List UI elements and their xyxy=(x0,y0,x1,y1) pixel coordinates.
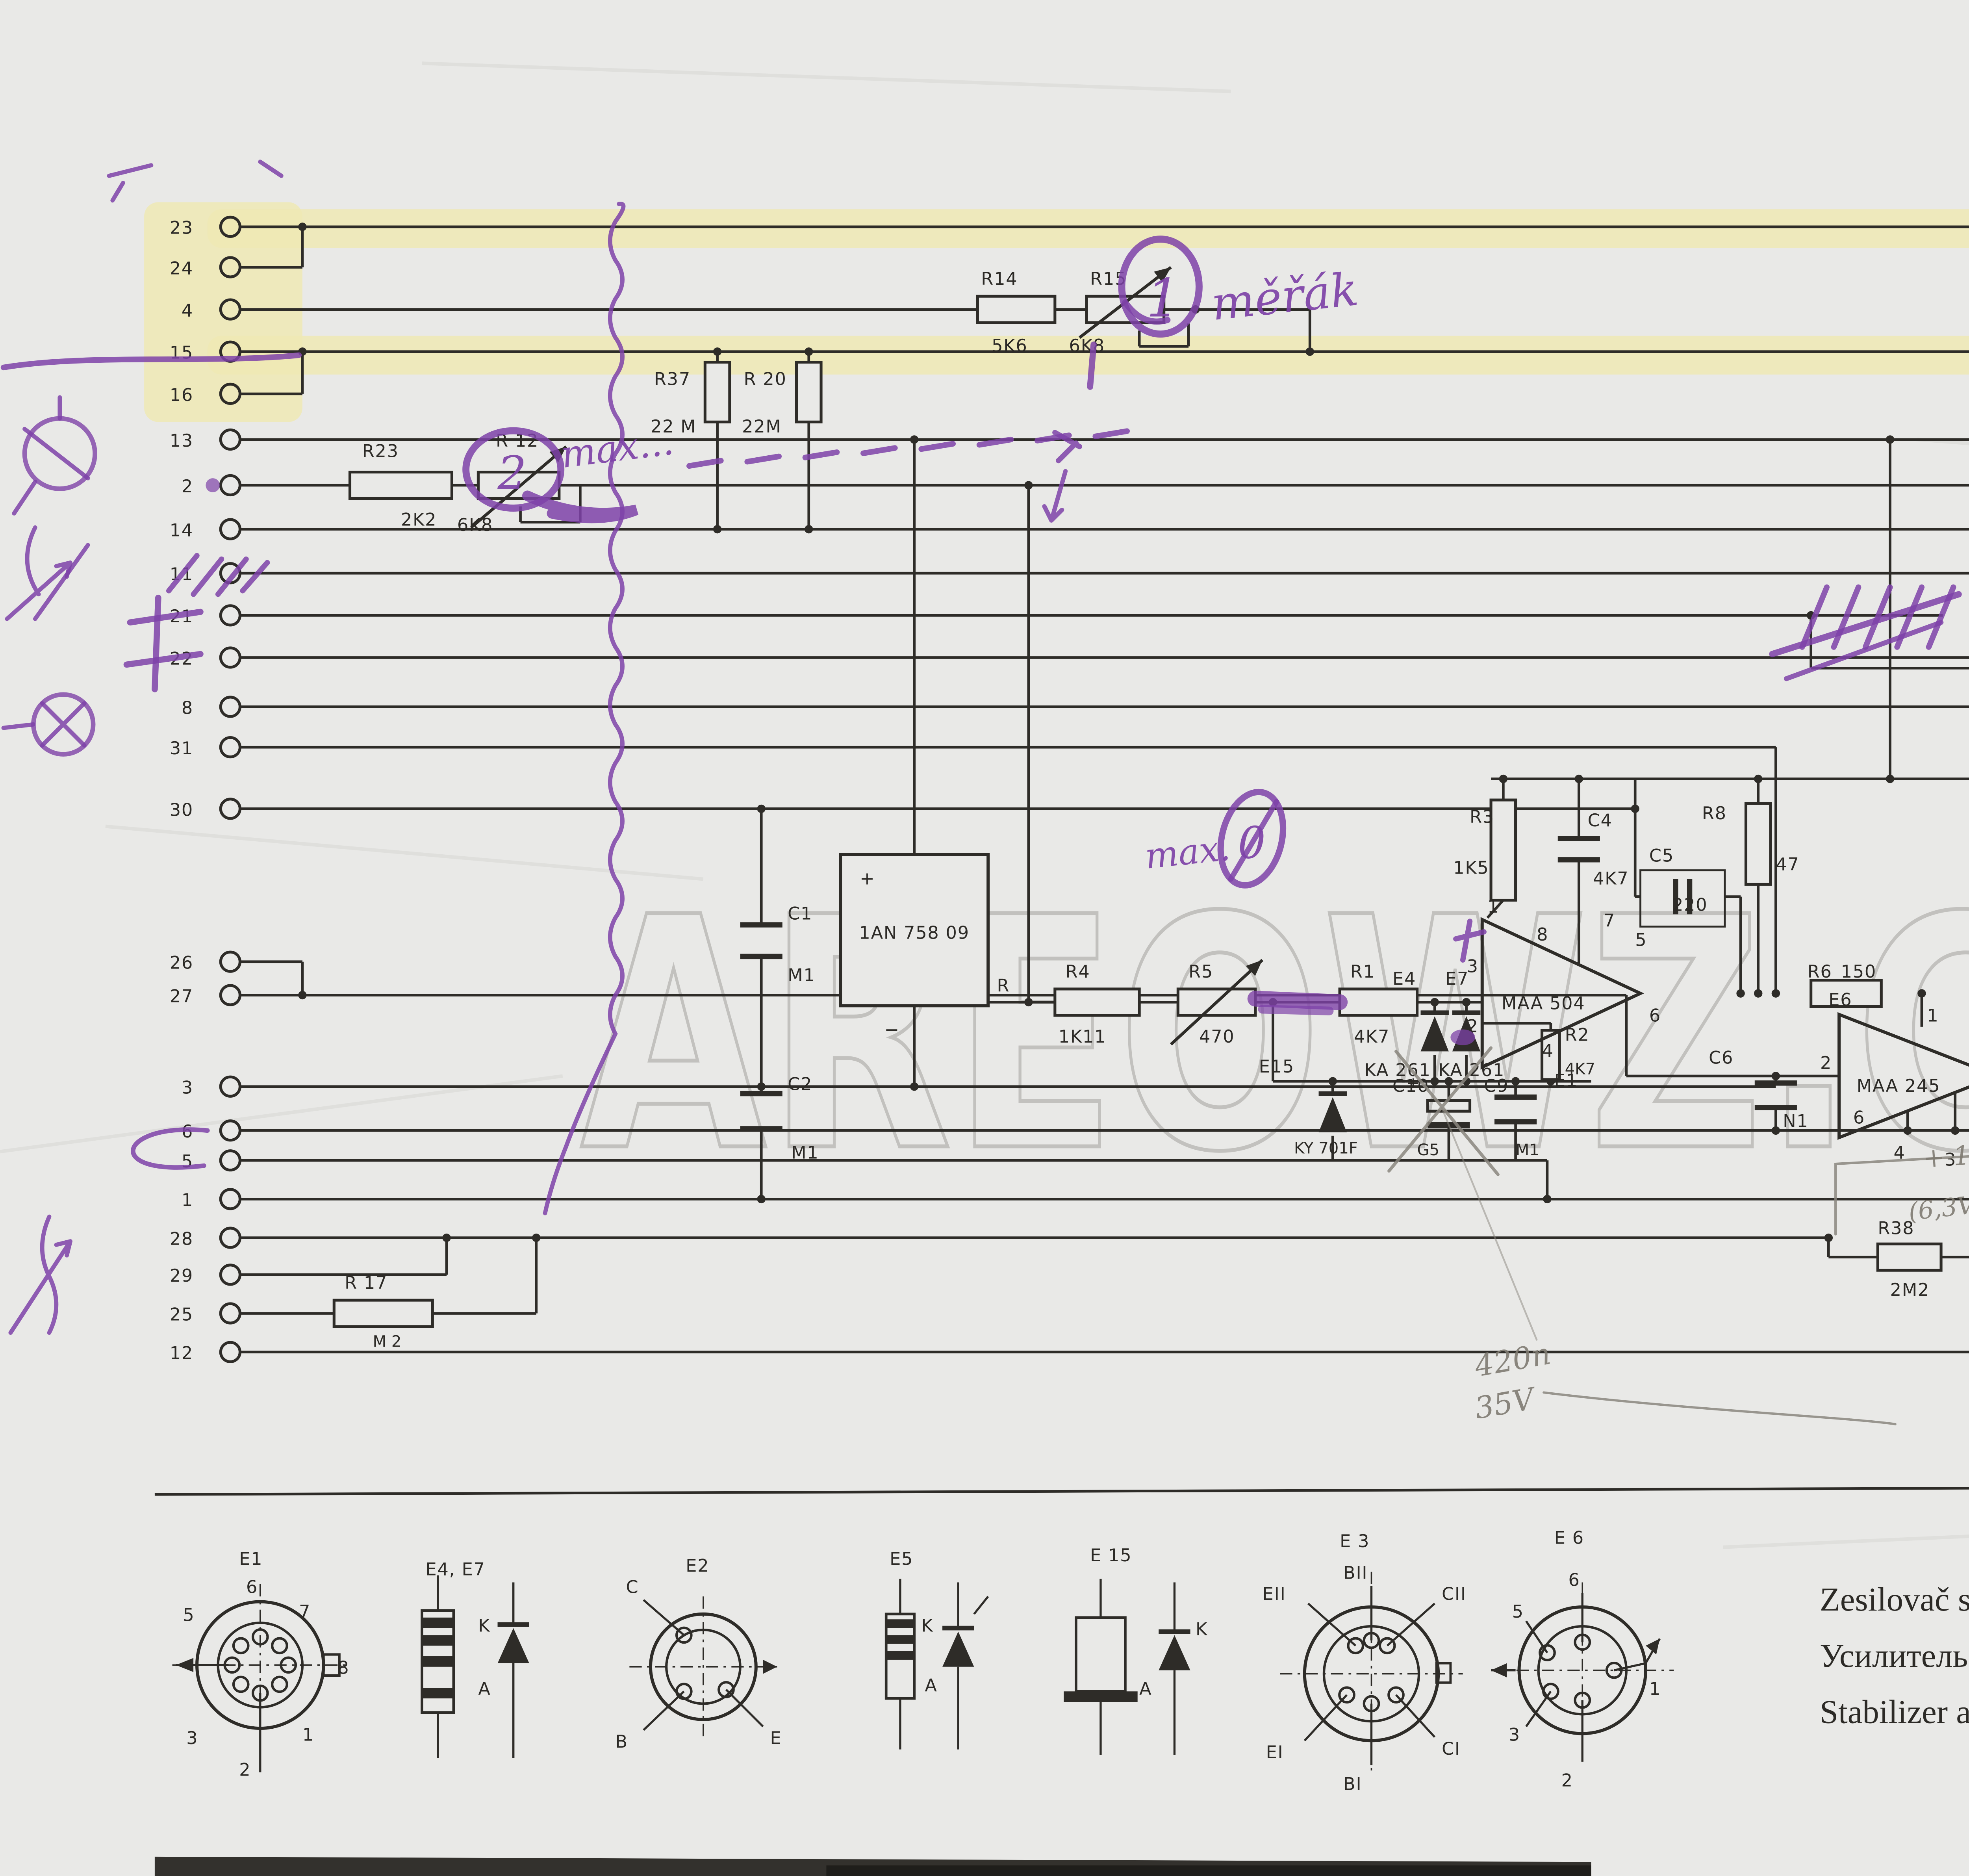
junction-dot xyxy=(757,805,766,813)
e1-pin: 6 xyxy=(1649,1006,1661,1026)
label-components.E15.name: E15 xyxy=(1259,1056,1294,1077)
e1-pin: 4 xyxy=(1542,1041,1554,1061)
junction-dot xyxy=(1575,775,1583,783)
junction-dot xyxy=(1511,1077,1520,1086)
label-components.R3.name: R3 xyxy=(1470,807,1494,827)
label-components.E1.value: MAA 504 xyxy=(1502,993,1585,1013)
junction-dot xyxy=(1024,998,1033,1006)
label-components.E7.name: E7 xyxy=(1445,969,1469,989)
e1-pin: 3 xyxy=(1467,956,1479,977)
purple-mark xyxy=(155,598,158,689)
legend-e1-pin: 5 xyxy=(183,1605,195,1625)
label-components.E6.value: MAA 245 xyxy=(1857,1076,1941,1096)
e1-pin: 8 xyxy=(1537,924,1548,945)
legend-e15-title: E 15 xyxy=(1090,1545,1132,1566)
label-components.R37.name: R37 xyxy=(654,369,691,390)
label-components.C6.value: N1 xyxy=(1783,1111,1808,1131)
label-components.R5.name: R5 xyxy=(1188,961,1213,982)
pin-number: 1 xyxy=(182,1190,193,1210)
pencil-cap-plus: + 1μF xyxy=(1922,1137,1969,1174)
junction-dot xyxy=(532,1234,540,1242)
e1-pin: 7 xyxy=(1604,910,1615,931)
label-legend.e2.e: E xyxy=(770,1728,782,1748)
pin-number: 12 xyxy=(170,1343,193,1364)
purple-mark xyxy=(1263,1009,1329,1011)
pin-number: 4 xyxy=(182,301,193,321)
legend-e3-term: CII xyxy=(1442,1584,1467,1604)
legend-e6-pin: 3 xyxy=(1509,1724,1520,1745)
junction-dot xyxy=(757,1082,766,1091)
resistor-R1 xyxy=(1340,989,1417,1015)
e1-pin: 1 xyxy=(1487,896,1499,917)
label-ic_marks.minus: − xyxy=(884,1019,900,1040)
resistor-R23 xyxy=(350,472,452,499)
resistor-R38 xyxy=(1878,1244,1941,1270)
label-legend.e15.a: A xyxy=(1139,1679,1152,1699)
label-components.R38.name: R38 xyxy=(1878,1218,1914,1239)
legend-e1-pin: 2 xyxy=(239,1760,251,1780)
label-legend.e5.a: A xyxy=(925,1675,937,1696)
junction-dot xyxy=(1886,775,1894,783)
junction-dot xyxy=(1772,1126,1780,1135)
purple-blob xyxy=(206,478,220,492)
label-components.C9.value: M1 xyxy=(1516,1141,1539,1159)
junction-dot xyxy=(1499,775,1507,783)
legend-e1-pin: 8 xyxy=(337,1658,349,1678)
legend-e3-term: BII xyxy=(1343,1563,1368,1583)
label-components.E4.name: E4 xyxy=(1392,969,1416,989)
label-ic_marks.out: R xyxy=(997,976,1010,996)
label-components.R14.value: 5K6 xyxy=(992,336,1027,356)
legend-body-stripe xyxy=(886,1651,914,1660)
label-components.E4.value: KA 261 xyxy=(1365,1060,1431,1080)
label-components.R17.name: R 17 xyxy=(345,1273,387,1293)
scan-bottom-band-dark xyxy=(826,1865,1591,1876)
legend-body-stripe xyxy=(422,1618,454,1628)
label-components.R1.name: R1 xyxy=(1350,961,1375,982)
legend-e5-title: E5 xyxy=(890,1549,913,1569)
legend-e6-title: E 6 xyxy=(1554,1527,1584,1548)
junction-dot xyxy=(910,1082,918,1091)
legend-e1-pin: 7 xyxy=(299,1601,311,1622)
e1-pin: 5 xyxy=(1635,930,1647,950)
legend-body-stripe xyxy=(422,1635,454,1646)
legend-e1-pin: 3 xyxy=(186,1728,198,1748)
pin-number: 27 xyxy=(170,986,193,1006)
junction-dot xyxy=(298,223,306,231)
label-legend.e4e7.a: A xyxy=(478,1679,491,1699)
label-components.R20.name: R 20 xyxy=(744,369,787,390)
junction-dot xyxy=(713,347,721,356)
junction-dot xyxy=(805,525,813,533)
junction-dot xyxy=(1951,1126,1959,1135)
title-russian: Усилитель стабилизатора xyxy=(1820,1637,1969,1674)
junction-dot xyxy=(298,991,306,999)
purple-mark xyxy=(1090,345,1094,387)
pin-number: 24 xyxy=(170,258,193,278)
label-components.C6.name: C6 xyxy=(1709,1048,1734,1068)
legend-e3-term: BI xyxy=(1343,1774,1362,1794)
legend-e3-term: CI xyxy=(1442,1739,1461,1759)
junction-dot xyxy=(1736,989,1745,997)
resistor-R4 xyxy=(1055,989,1139,1015)
pin-number: 29 xyxy=(170,1266,193,1286)
resistor-R37 xyxy=(705,362,730,422)
junction-dot xyxy=(442,1234,451,1242)
label-components.R5.value: 470 xyxy=(1199,1026,1235,1047)
junction-dot xyxy=(1631,805,1639,813)
junction-dot xyxy=(1772,1072,1780,1080)
legend-body-stripe xyxy=(422,1656,454,1667)
legend-e3-title: E 3 xyxy=(1340,1531,1370,1551)
pin-number: 31 xyxy=(170,738,193,759)
label-components.E6.name: E6 xyxy=(1828,989,1852,1010)
label-legend.e15.k: K xyxy=(1196,1619,1208,1639)
junction-dot xyxy=(1917,989,1926,997)
junction-dot xyxy=(1754,989,1762,997)
label-components.R3.value: 1K5 xyxy=(1453,858,1489,878)
junction-dot xyxy=(1754,775,1762,783)
resistor-R3 xyxy=(1491,800,1516,900)
label-components.C2.name: C2 xyxy=(788,1074,812,1095)
title-english: Stabilizer amplifier xyxy=(1820,1694,1969,1731)
schematic-scan-page: AREOWZ.CZ 232441516132141121228313026273… xyxy=(0,0,1969,1876)
legend-e3-term: EII xyxy=(1263,1584,1286,1604)
schematic-svg: AREOWZ.CZ 232441516132141121228313026273… xyxy=(0,0,1969,1876)
label-components.C1.value: M1 xyxy=(788,965,815,985)
pin-number: 8 xyxy=(182,698,193,718)
junction-dot xyxy=(1772,989,1780,997)
label-ic_marks.plus: + xyxy=(860,868,875,889)
legend-e1-title: E1 xyxy=(239,1549,263,1569)
junction-dot xyxy=(757,1195,766,1203)
pin-number: 16 xyxy=(170,385,193,405)
legend-e6-pin: 2 xyxy=(1561,1770,1573,1791)
junction-dot xyxy=(1886,435,1894,443)
junction-dot xyxy=(805,347,813,356)
label-components.R12.value: 6K8 xyxy=(457,515,493,535)
legend-body-base xyxy=(1064,1691,1138,1702)
e6-pin: 2 xyxy=(1820,1053,1832,1073)
legend-e6-pin: 6 xyxy=(1569,1570,1580,1590)
label-components.R38.value: 2M2 xyxy=(1890,1280,1930,1300)
label-components.R23.name: R23 xyxy=(362,441,399,462)
pin-number: 25 xyxy=(170,1304,193,1325)
label-components.IC.name: 1AN 758 09 xyxy=(859,923,970,943)
junction-dot xyxy=(1431,998,1439,1006)
purple-mark xyxy=(1255,999,1340,1002)
label-components.R2.name: R2 xyxy=(1565,1025,1590,1045)
label-components.C5.value: 220 xyxy=(1672,894,1708,915)
pin-number: 14 xyxy=(170,520,193,540)
junction-dot xyxy=(1024,481,1033,489)
resistor-R8 xyxy=(1746,803,1771,884)
label-components.C5.name: C5 xyxy=(1649,845,1674,866)
legend-e6-pin: 5 xyxy=(1512,1601,1524,1622)
label-components.R4.value: 1K11 xyxy=(1059,1026,1107,1047)
label-components.R14.name: R14 xyxy=(981,269,1018,289)
label-components.R15.value: 6K8 xyxy=(1069,336,1105,356)
legend-e4e7-title: E4, E7 xyxy=(425,1559,485,1580)
pin-number: 2 xyxy=(182,476,193,497)
junction-dot xyxy=(1431,1077,1439,1086)
label-legend.e2.c: C xyxy=(626,1577,639,1597)
label-components.C10.value: G5 xyxy=(1417,1141,1440,1159)
label-components.E15.value: KY 701F xyxy=(1294,1139,1358,1157)
pin-number: 13 xyxy=(170,430,193,451)
label-components.C4.name: C4 xyxy=(1588,810,1613,831)
legend-e6-pin: 1 xyxy=(1649,1679,1661,1699)
yellow-highlight xyxy=(208,209,1969,248)
junction-dot xyxy=(1329,1077,1337,1086)
legend-e1-pin: 6 xyxy=(246,1577,258,1597)
label-components.R20.value: 22M xyxy=(742,416,782,437)
purple-two: 2 xyxy=(497,447,527,500)
e6-pin: 6 xyxy=(1853,1107,1865,1128)
label-components.R8.value: 47 xyxy=(1776,854,1799,875)
label-legend.e2.b: B xyxy=(616,1731,628,1752)
legend-body-stripe xyxy=(422,1688,454,1698)
label-components.C1.name: C1 xyxy=(788,904,812,924)
purple-blob xyxy=(1450,1030,1475,1045)
label-components.R6.name: R6 xyxy=(1808,961,1832,982)
legend-e3-term: EI xyxy=(1266,1742,1284,1763)
pin-number: 26 xyxy=(170,953,193,973)
label-components.E1.name: E1 xyxy=(1554,1071,1578,1091)
resistor-R14 xyxy=(977,296,1055,323)
label-components.R17.value: M 2 xyxy=(373,1332,402,1351)
junction-dot xyxy=(713,525,721,533)
label-components.C4.value: 4K7 xyxy=(1593,868,1629,889)
junction-dot xyxy=(1462,998,1470,1006)
label-legend.e4e7.k: K xyxy=(478,1616,490,1636)
legend-body-stripe xyxy=(886,1619,914,1628)
label-legend.e5.k: K xyxy=(921,1616,934,1636)
title-czech: Zesilovač stabilizátoru xyxy=(1820,1581,1969,1618)
junction-dot xyxy=(1543,1195,1551,1203)
e6-pin: 1 xyxy=(1927,1006,1939,1026)
junction-dot xyxy=(1904,1126,1912,1135)
junction-dot xyxy=(910,435,918,443)
label-components.R4.name: R4 xyxy=(1066,961,1090,982)
pin-number: 23 xyxy=(170,218,193,238)
pin-number: 3 xyxy=(182,1078,193,1098)
label-components.R8.name: R8 xyxy=(1702,803,1727,824)
resistor-R17 xyxy=(334,1300,432,1327)
junction-dot xyxy=(1824,1234,1833,1242)
label-components.R1.value: 4K7 xyxy=(1354,1026,1390,1047)
pin-number: 28 xyxy=(170,1228,193,1249)
title-block-layer: Zesilovač stabilizátoruУсилитель стабили… xyxy=(1820,1581,1969,1752)
junction-dot xyxy=(1306,347,1314,356)
resistor-R20 xyxy=(797,362,821,422)
pin-number: 30 xyxy=(170,800,193,820)
label-components.R6.value: 150 xyxy=(1841,961,1877,982)
legend-e1-pin: 1 xyxy=(302,1724,314,1745)
label-components.R23.value: 2K2 xyxy=(401,510,437,530)
label-components.C2.value: M1 xyxy=(791,1143,819,1163)
legend-body-stripe xyxy=(886,1635,914,1644)
legend-e2-title: E2 xyxy=(686,1556,709,1576)
